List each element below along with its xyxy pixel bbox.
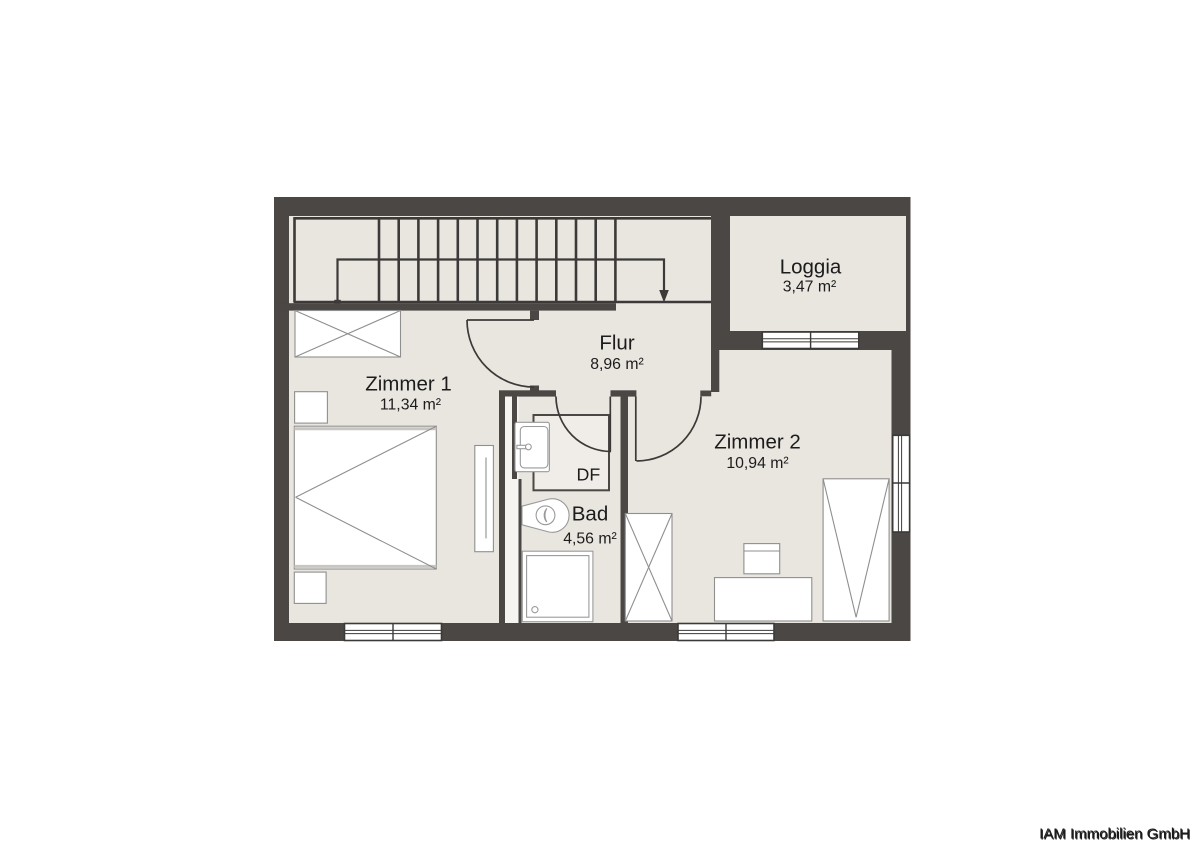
svg-text:DF: DF [577, 465, 601, 485]
svg-text:Loggia: Loggia [780, 255, 842, 278]
svg-text:4,56 m²: 4,56 m² [563, 530, 617, 547]
svg-text:Zimmer 1: Zimmer 1 [365, 372, 452, 395]
svg-text:Flur: Flur [599, 332, 634, 355]
svg-text:10,94 m²: 10,94 m² [726, 455, 788, 472]
svg-text:3,47 m²: 3,47 m² [783, 279, 837, 296]
svg-text:IAM Immobilien GmbH: IAM Immobilien GmbH [1039, 825, 1190, 842]
svg-text:Zimmer 2: Zimmer 2 [714, 431, 801, 454]
svg-text:8,96 m²: 8,96 m² [590, 356, 644, 373]
svg-text:Bad: Bad [572, 502, 608, 525]
svg-text:11,34 m²: 11,34 m² [380, 396, 441, 413]
